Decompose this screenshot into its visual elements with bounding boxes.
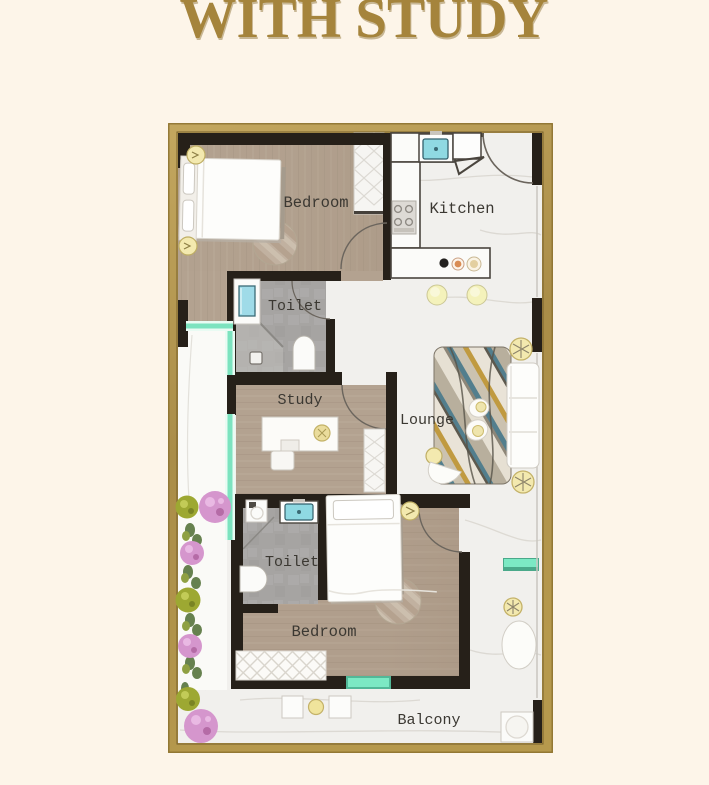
svg-text:Bedroom: Bedroom bbox=[291, 623, 356, 641]
svg-text:Toilet: Toilet bbox=[265, 554, 319, 571]
svg-text:Kitchen: Kitchen bbox=[429, 200, 494, 218]
svg-text:WITH STUDY: WITH STUDY bbox=[180, 0, 549, 50]
svg-text:Study: Study bbox=[277, 392, 322, 409]
svg-text:Toilet: Toilet bbox=[268, 298, 322, 315]
svg-text:Lounge: Lounge bbox=[400, 412, 454, 429]
svg-text:Bedroom: Bedroom bbox=[283, 194, 348, 212]
svg-text:Balcony: Balcony bbox=[397, 712, 460, 729]
